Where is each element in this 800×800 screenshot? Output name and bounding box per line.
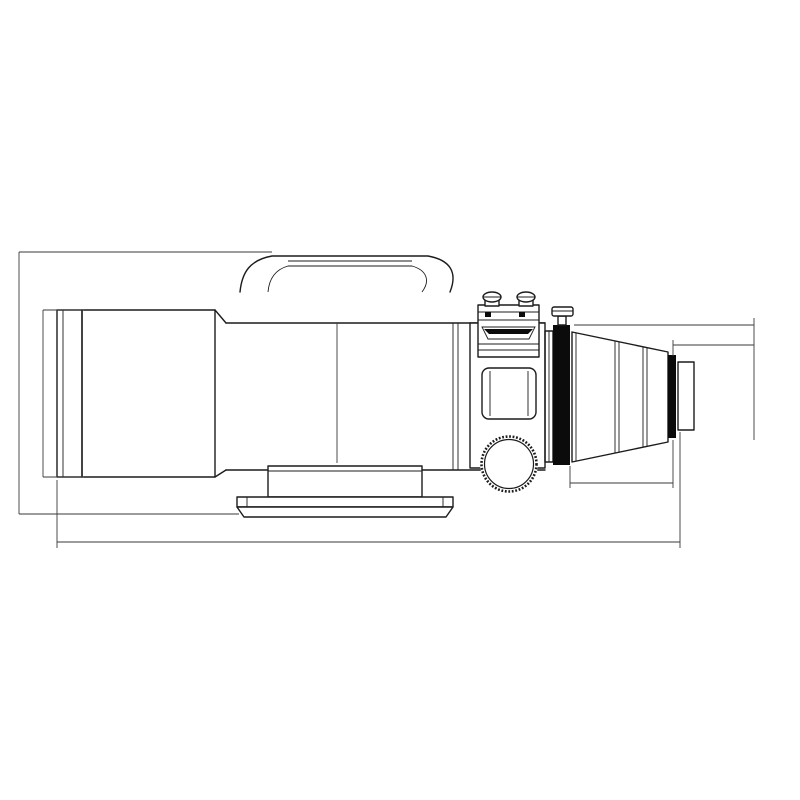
end-ring [668, 355, 676, 438]
dewshield-front-ring [57, 310, 82, 477]
telescope-outline [57, 256, 694, 493]
dewshield-body [82, 310, 215, 477]
finder-shoe [478, 292, 539, 357]
drawing-canvas [0, 0, 800, 800]
dovetail-plate [237, 466, 453, 517]
telescope-technical-drawing [0, 0, 800, 800]
m86-lock-ring [553, 325, 570, 465]
shoe-thumbscrew-left [483, 292, 501, 306]
lock-thumbscrew [552, 307, 573, 325]
focus-knob [480, 435, 538, 493]
carry-handle [240, 256, 453, 292]
m48-thread-barrel [678, 362, 694, 430]
shoe-thumbscrew-right [517, 292, 535, 306]
adapter-cone [572, 332, 668, 462]
